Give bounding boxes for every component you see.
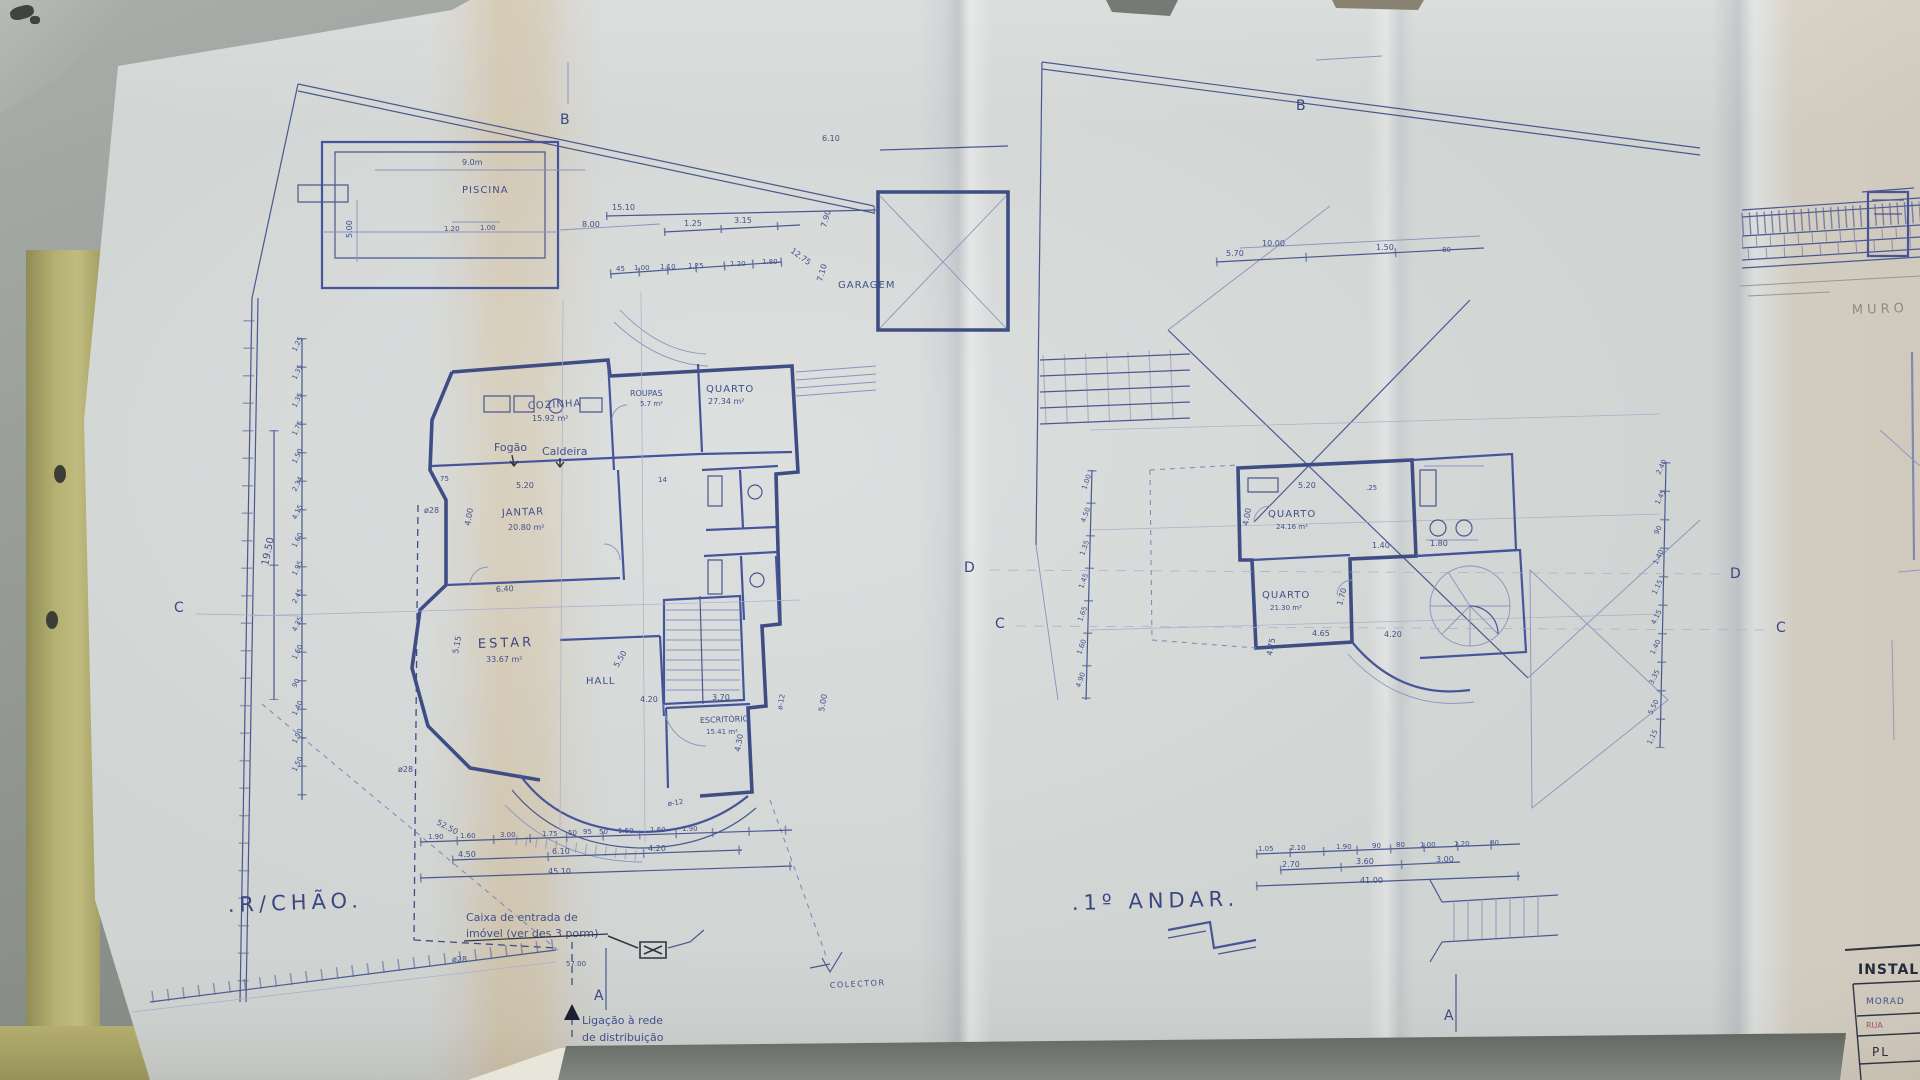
brow2-0: 4.50 bbox=[458, 850, 476, 859]
garage-walls bbox=[614, 146, 1008, 396]
dim-seg0: 8.00 bbox=[582, 220, 600, 229]
dim-row-5: 1.80 bbox=[762, 258, 778, 266]
brow1-6: 50 bbox=[599, 828, 608, 836]
lig-note-1: Ligação à rede bbox=[582, 1014, 663, 1027]
dining-label: JANTAR bbox=[501, 507, 545, 520]
dim-row-2: 1.10 bbox=[660, 263, 676, 271]
r-bedroom2-label: QUARTO bbox=[1262, 590, 1310, 601]
section-a-right: A bbox=[1444, 1008, 1454, 1024]
boiler-label: Caldeira bbox=[542, 445, 588, 458]
rtd-3: 80 bbox=[1442, 246, 1451, 254]
pool bbox=[298, 142, 585, 288]
side-panel: MURO INSTAL MORAD RUA PL bbox=[1740, 188, 1920, 1080]
rrc-9: 1.15 bbox=[1646, 728, 1660, 746]
upper-walls bbox=[1150, 454, 1526, 703]
brow1-2: 3.00 bbox=[500, 831, 516, 839]
pool-dim-b: 1.00 bbox=[480, 224, 496, 232]
entry-note-1: Caixa de entrada de bbox=[466, 911, 578, 924]
dim-5700: 57.00 bbox=[566, 960, 586, 968]
rd-520: 5.20 bbox=[1298, 481, 1316, 490]
rrc-2: 90 bbox=[1653, 524, 1664, 536]
dim-550: 5.50 bbox=[612, 649, 629, 669]
folder-holes bbox=[46, 465, 66, 629]
brow1-5: 95 bbox=[583, 828, 592, 836]
brow1-7: 1.50 bbox=[618, 827, 634, 835]
rrc-0: 2.40 bbox=[1655, 458, 1669, 476]
pipe28-c: ø28 bbox=[452, 955, 467, 964]
r-bedroom2-area: 21.30 m² bbox=[1270, 604, 1302, 612]
rtd-2: 1.50 bbox=[1376, 243, 1394, 252]
rb-total: 41.00 bbox=[1360, 876, 1383, 885]
lchain-5: 2.34 bbox=[291, 475, 305, 493]
office-label: ESCRITÓRIO bbox=[700, 712, 749, 725]
garage-dim-w: 6.10 bbox=[822, 134, 840, 143]
garage-diag-dim: 12.75 bbox=[789, 246, 813, 267]
steps-detail bbox=[1430, 880, 1558, 962]
hall-label: HALL bbox=[586, 676, 616, 687]
dim-520: 5.20 bbox=[516, 481, 534, 490]
garage-v1-dim: 7.90 bbox=[819, 209, 833, 229]
dim-row-3: 1.25 bbox=[688, 262, 704, 270]
lig-note-2: de distribuição bbox=[582, 1031, 664, 1044]
rrc-6: 1.40 bbox=[1649, 638, 1663, 656]
dim-400: 4.00 bbox=[463, 507, 475, 526]
rb1-2: 1.90 bbox=[1336, 843, 1352, 851]
rb2-0: 2.70 bbox=[1282, 860, 1300, 869]
dim-420: 4.20 bbox=[640, 695, 658, 704]
property-boundary bbox=[132, 84, 874, 1012]
section-c-left: C bbox=[174, 600, 184, 616]
north-arrow bbox=[564, 1004, 580, 1020]
dim-row-0: 45 bbox=[616, 265, 625, 273]
rlc-3: 1.45 bbox=[1077, 572, 1090, 589]
brow1-3: 1.75 bbox=[542, 830, 558, 838]
dim-seg2: 3.15 bbox=[734, 216, 752, 225]
brow1-1: 1.60 bbox=[460, 832, 476, 840]
section-a-left: A bbox=[594, 988, 604, 1004]
muro-label: MURO bbox=[1852, 301, 1908, 318]
office-area: 15.41 m² bbox=[706, 728, 738, 736]
linen-label: ROUPAS bbox=[630, 389, 663, 398]
house-walls bbox=[250, 292, 800, 862]
garage-label: GARAGEM bbox=[838, 280, 896, 291]
blueprint-photo: PISCINA 9.0m 5.00 1.20 1.00 GARAGEM 6.10… bbox=[0, 0, 1920, 1080]
rd-25: .25 bbox=[1366, 484, 1377, 492]
section-c-right: C bbox=[1776, 620, 1786, 636]
wall-elevation-detail bbox=[1742, 188, 1920, 268]
rb1-1: 2.10 bbox=[1290, 844, 1306, 852]
dim-14: 14 bbox=[658, 476, 667, 484]
rb1-3: 90 bbox=[1372, 842, 1381, 850]
pipe12-b: ø-12 bbox=[667, 798, 684, 808]
stove-label: Fogão bbox=[494, 441, 527, 454]
section-d-right: D bbox=[1730, 566, 1741, 582]
dim-515: 5.15 bbox=[451, 635, 463, 654]
dim-row-4: 1.20 bbox=[730, 260, 746, 268]
rrc-7: 3.35 bbox=[1648, 668, 1662, 686]
rd-140: 1.40 bbox=[1372, 541, 1390, 550]
rd-180: 1.80 bbox=[1430, 539, 1448, 548]
pool-dim-w: 9.0m bbox=[462, 158, 483, 167]
left-plan: PISCINA 9.0m 5.00 1.20 1.00 GARAGEM 6.10… bbox=[132, 62, 1008, 1044]
rb1-0: 1.05 bbox=[1258, 845, 1274, 853]
collector-label: COLECTOR bbox=[830, 978, 886, 990]
title-block-line3: PL bbox=[1872, 1045, 1890, 1059]
rd-170: 1.70 bbox=[1335, 587, 1348, 607]
title-block-header: INSTAL bbox=[1858, 962, 1919, 978]
section-b-right: B bbox=[1296, 98, 1306, 114]
bedroom-area: 27.34 m² bbox=[708, 397, 744, 406]
bottom-total: 45.10 bbox=[548, 867, 571, 876]
right-boundary bbox=[1036, 62, 1700, 700]
rb2-2: 3.00 bbox=[1436, 855, 1454, 864]
pool-label: PISCINA bbox=[462, 185, 509, 196]
rlc-4: 1.65 bbox=[1076, 605, 1089, 622]
blueprint-drawing: PISCINA 9.0m 5.00 1.20 1.00 GARAGEM 6.10… bbox=[0, 0, 1920, 1080]
dim-row-1: 1.00 bbox=[634, 264, 650, 272]
dim-500: 5.00 bbox=[817, 693, 829, 712]
kitchen-area: 15.92 m² bbox=[532, 414, 568, 423]
bedroom-label: QUARTO bbox=[706, 384, 754, 395]
dim-seg1: 1.25 bbox=[684, 219, 702, 228]
rd-465: 4.65 bbox=[1312, 629, 1330, 638]
pencil-lines bbox=[1740, 276, 1920, 296]
pipe28-a: ø28 bbox=[424, 506, 439, 515]
r-bedroom1-area: 24.16 m² bbox=[1276, 523, 1308, 531]
rb2-1: 3.60 bbox=[1356, 857, 1374, 866]
living-area: 33.67 m² bbox=[486, 655, 522, 664]
brow1-0: 1.90 bbox=[428, 833, 444, 841]
table-object-mark-2 bbox=[30, 16, 40, 24]
pipe28-b: ø28 bbox=[398, 765, 413, 774]
dim-370: 3.70 bbox=[712, 693, 730, 702]
pool-dim-a: 1.20 bbox=[444, 225, 460, 233]
title-block-line2: RUA bbox=[1866, 1021, 1883, 1030]
rtd-0: 5.70 bbox=[1226, 249, 1244, 258]
roof-lines bbox=[1090, 206, 1700, 808]
brow1-9: 1.90 bbox=[682, 825, 698, 833]
rlc-5: 1.60 bbox=[1075, 638, 1088, 655]
dim-640: 6.40 bbox=[496, 584, 514, 594]
dining-area: 20.80 m² bbox=[508, 523, 544, 532]
living-label: ESTAR bbox=[478, 635, 535, 652]
pool-dim-h: 5.00 bbox=[345, 220, 354, 238]
section-b-right-line bbox=[1316, 56, 1382, 60]
section-c-mid: C bbox=[995, 616, 1005, 632]
rb1-4: 80 bbox=[1396, 841, 1405, 849]
rd-400: 4.00 bbox=[1241, 507, 1253, 526]
retaining-wall-detail bbox=[1168, 922, 1256, 954]
section-d-mid: D bbox=[964, 560, 975, 576]
rlc-6: 4.90 bbox=[1074, 671, 1087, 688]
pergola bbox=[1040, 354, 1190, 424]
dim-430: 4.30 bbox=[733, 733, 745, 752]
right-plan: 5.70 10.00 1.50 80 QUARTO 24.16 m² QUART… bbox=[990, 56, 1786, 1032]
garage-v2-dim: 7.10 bbox=[815, 263, 829, 283]
lchain-12: 90 bbox=[291, 677, 302, 689]
brow2-2: 4.20 bbox=[648, 844, 666, 853]
dim-total-top: 15.10 bbox=[612, 203, 635, 212]
section-a-marker bbox=[564, 948, 606, 1020]
rb1-6: 1.20 bbox=[1454, 840, 1470, 848]
rb1-7: 80 bbox=[1490, 839, 1499, 847]
title-block-line1: MORAD bbox=[1866, 997, 1905, 1007]
linen-area: 5.7 m² bbox=[640, 400, 663, 408]
section-b-left: B bbox=[560, 112, 570, 128]
kitchen-label: COZINHA bbox=[528, 398, 582, 412]
pipe12-a: ø-12 bbox=[776, 693, 787, 710]
right-plan-title: .1º ANDAR. bbox=[1072, 887, 1240, 915]
rrc-4: 1.15 bbox=[1651, 578, 1665, 596]
r-bedroom1-label: QUARTO bbox=[1268, 509, 1316, 520]
brow1-8: 1.60 bbox=[650, 826, 666, 834]
brow2-1: 6.10 bbox=[552, 847, 570, 856]
rtd-1: 10.00 bbox=[1262, 239, 1285, 248]
right-left-chain bbox=[1086, 470, 1092, 700]
rrc-5: 4.15 bbox=[1650, 608, 1664, 626]
rd-420: 4.20 bbox=[1384, 630, 1402, 639]
edge-fragments bbox=[1880, 352, 1920, 740]
entry-box-symbol bbox=[608, 930, 704, 958]
dim-75: 75 bbox=[440, 475, 449, 483]
brow1-4: 50 bbox=[568, 829, 577, 837]
rd-475: 4.75 bbox=[1265, 637, 1277, 656]
rb1-5: 1.00 bbox=[1420, 841, 1436, 849]
